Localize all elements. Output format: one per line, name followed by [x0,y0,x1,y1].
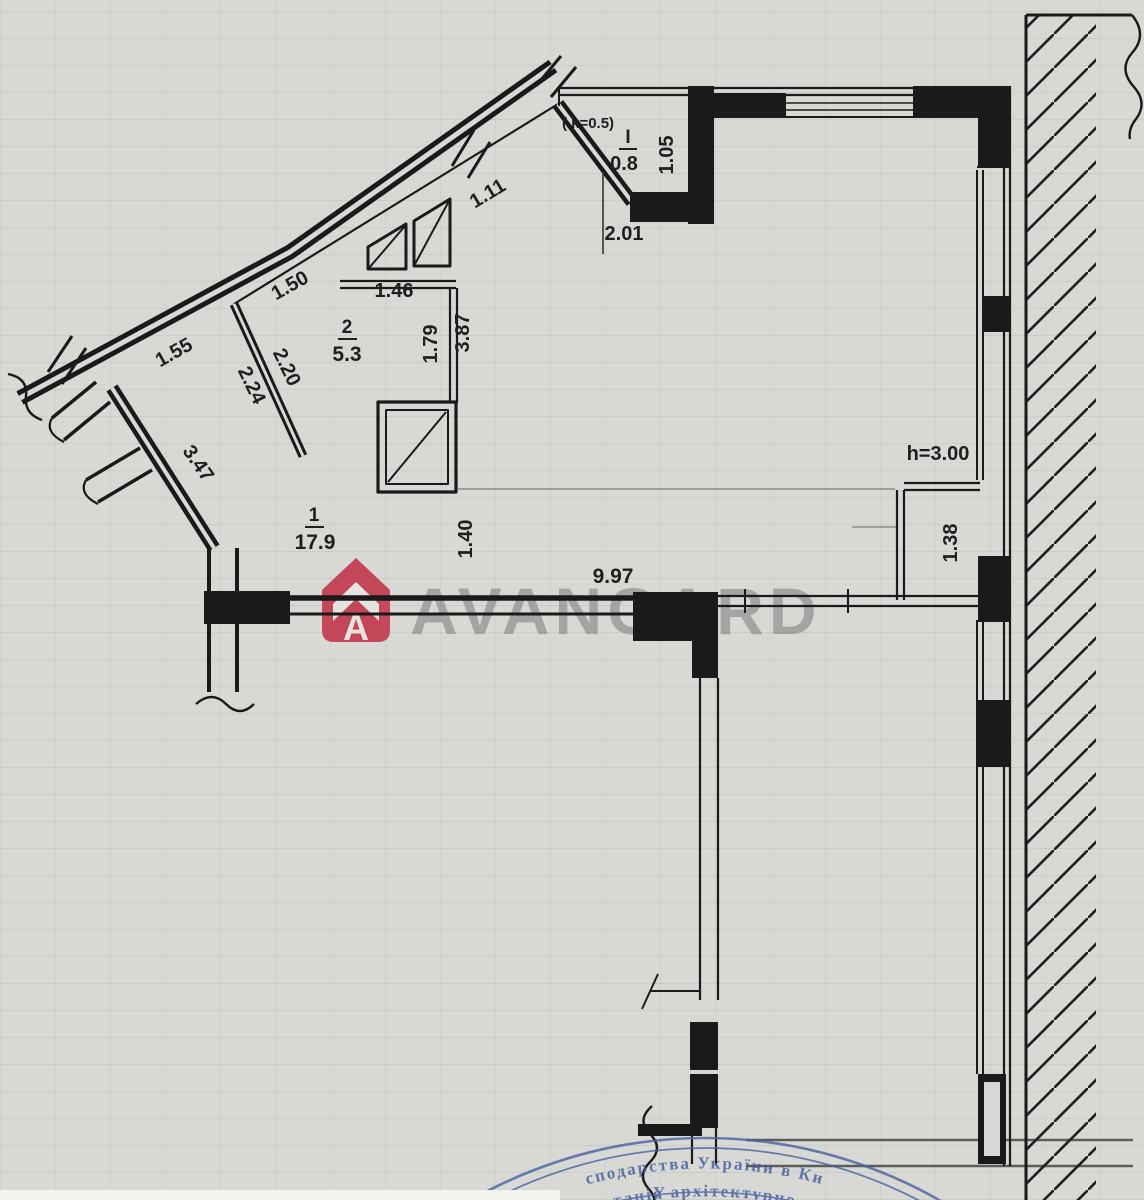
dim-9-97: 9.97 [593,565,634,588]
hatched-section-wall [1026,15,1142,1200]
paper-break-squiggle [1125,15,1141,139]
dim-1-79: 1.79 [420,325,442,364]
stamp-center-fragment: У [653,1183,667,1200]
coefficient-note: ( k=0.5) [562,115,614,132]
hall-number: 2 [342,317,353,338]
living-area: 17.9 [295,531,336,554]
dim-1-46: 1.46 [375,280,414,302]
dim-1-55: 1.55 [152,334,197,372]
avangard-watermark: A AVANGARD [322,558,822,648]
labels: ( k=0.5) I 0.8 1.05 2.01 1.11 1.50 1.55 … [152,115,970,588]
hall-area: 5.3 [332,343,361,366]
balcony-area: 0.8 [610,153,638,175]
dim-1-38: 1.38 [940,524,962,563]
svg-text:тація архітектурно: тація архітектурно [611,1181,798,1200]
balcony-number: I [625,127,630,148]
faint-lines [458,489,897,527]
dim-2-01: 2.01 [605,223,644,245]
dim-1-05: 1.05 [656,136,678,175]
paper-edge [0,1190,560,1200]
dim-3-47: 3.47 [178,441,218,486]
dim-3-87: 3.87 [452,314,474,353]
avangard-logo-icon: A [322,558,390,648]
living-number: 1 [309,505,320,526]
dim-1-50: 1.50 [268,267,313,305]
scanned-floor-plan: A AVANGARD [0,0,1144,1200]
stamp-inner-arc-text: тація архітектурно [611,1181,798,1200]
dim-1-40: 1.40 [455,520,477,559]
dim-1-11: 1.11 [466,175,510,213]
floor-plan-svg: A AVANGARD [0,0,1144,1200]
ceiling-height-note: h=3.00 [907,443,970,465]
